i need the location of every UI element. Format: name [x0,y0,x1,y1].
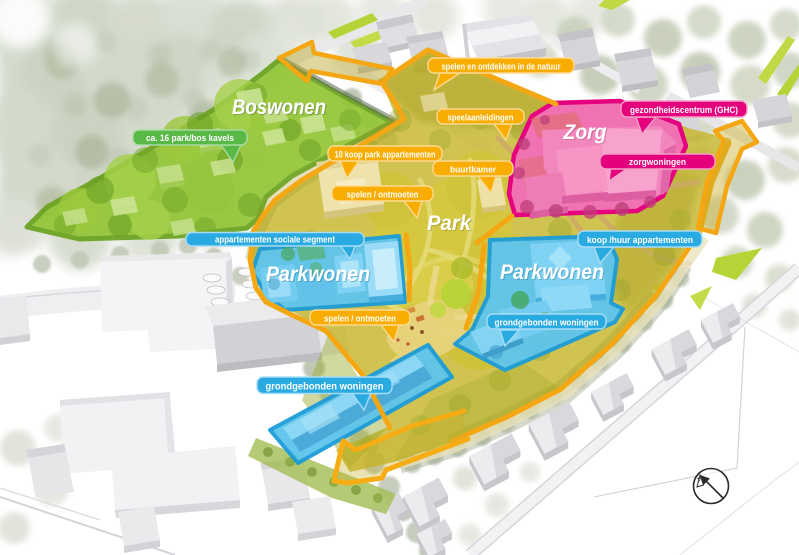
svg-text:koop /huur appartementen: koop /huur appartementen [587,235,693,245]
svg-text:grondgebonden woningen: grondgebonden woningen [495,318,599,328]
svg-text:Boswonen: Boswonen [232,96,326,119]
svg-text:spelen / ontmoeten: spelen / ontmoeten [324,314,396,324]
svg-text:buurtkamer: buurtkamer [450,165,496,175]
svg-text:gezondheidscentrum (GHC): gezondheidscentrum (GHC) [630,105,738,115]
svg-text:zorgwoningen: zorgwoningen [629,157,686,167]
svg-text:10 koop park appartementen: 10 koop park appartementen [335,150,436,160]
svg-text:Parkwonen: Parkwonen [500,261,604,284]
svg-text:speelaanleidingen: speelaanleidingen [448,113,514,123]
svg-text:appartementen sociale segment: appartementen sociale segment [215,235,335,245]
svg-text:Parkwonen: Parkwonen [266,263,370,286]
svg-text:ca. 16 park/bos kavels: ca. 16 park/bos kavels [146,133,234,143]
svg-text:Zorg: Zorg [563,121,607,144]
svg-text:spelen / ontmoeten: spelen / ontmoeten [347,190,419,200]
svg-text:grondgebonden woningen: grondgebonden woningen [266,382,384,393]
svg-text:Park: Park [427,212,472,235]
svg-text:spelen en ontdekken in de natu: spelen en ontdekken in de natuur [442,62,561,72]
